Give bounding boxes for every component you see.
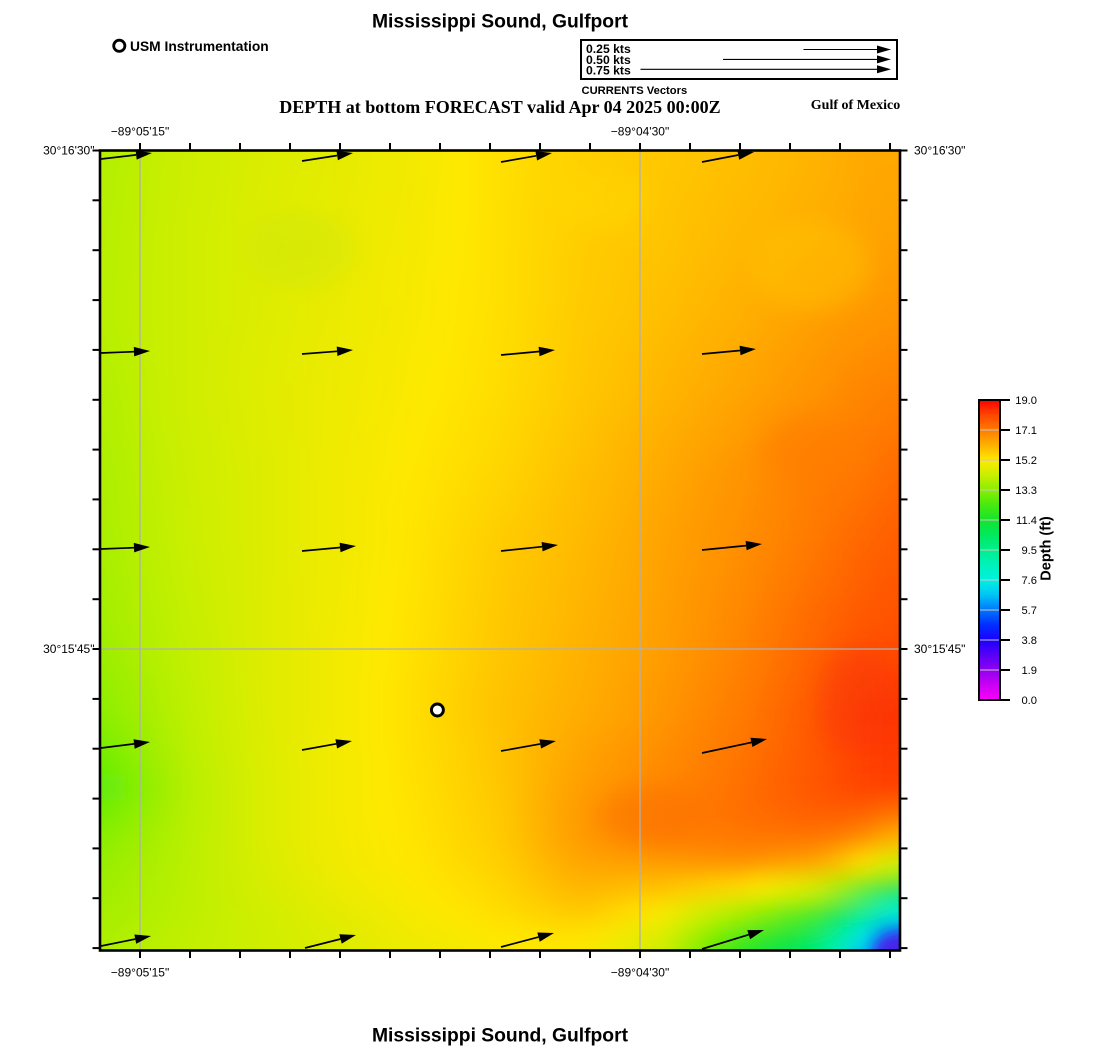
svg-text:30°16'30": 30°16'30" <box>914 144 965 158</box>
svg-text:Mississippi Sound, Gulfport: Mississippi Sound, Gulfport <box>372 12 629 33</box>
svg-text:−89°04'30": −89°04'30" <box>611 125 669 139</box>
svg-text:CURRENTS Vectors: CURRENTS Vectors <box>582 85 688 97</box>
svg-text:0.0: 0.0 <box>1021 695 1037 707</box>
svg-text:−89°04'30": −89°04'30" <box>611 966 669 980</box>
svg-text:USM Instrumentation: USM Instrumentation <box>130 39 269 54</box>
svg-text:DEPTH at bottom FORECAST valid: DEPTH at bottom FORECAST valid Apr 04 20… <box>279 97 720 117</box>
svg-text:3.8: 3.8 <box>1021 635 1037 647</box>
svg-text:30°15'45": 30°15'45" <box>914 642 965 656</box>
svg-text:0.75 kts: 0.75 kts <box>586 64 631 78</box>
svg-text:17.1: 17.1 <box>1015 425 1037 437</box>
svg-text:Mississippi Sound, Gulfport: Mississippi Sound, Gulfport <box>372 1026 629 1047</box>
svg-text:−89°05'15": −89°05'15" <box>111 966 169 980</box>
svg-text:9.5: 9.5 <box>1021 545 1037 557</box>
svg-text:1.9: 1.9 <box>1021 665 1037 677</box>
svg-text:15.2: 15.2 <box>1015 455 1037 467</box>
svg-text:13.3: 13.3 <box>1015 485 1037 497</box>
svg-text:7.6: 7.6 <box>1021 575 1037 587</box>
svg-text:11.4: 11.4 <box>1016 515 1037 527</box>
svg-text:−89°05'15": −89°05'15" <box>111 125 169 139</box>
svg-text:Depth (ft): Depth (ft) <box>1039 516 1055 581</box>
svg-text:5.7: 5.7 <box>1021 605 1037 617</box>
svg-text:Gulf of Mexico: Gulf of Mexico <box>811 98 900 113</box>
svg-text:19.0: 19.0 <box>1015 395 1037 407</box>
svg-text:30°16'30": 30°16'30" <box>43 144 94 158</box>
svg-text:30°15'45": 30°15'45" <box>43 642 94 656</box>
